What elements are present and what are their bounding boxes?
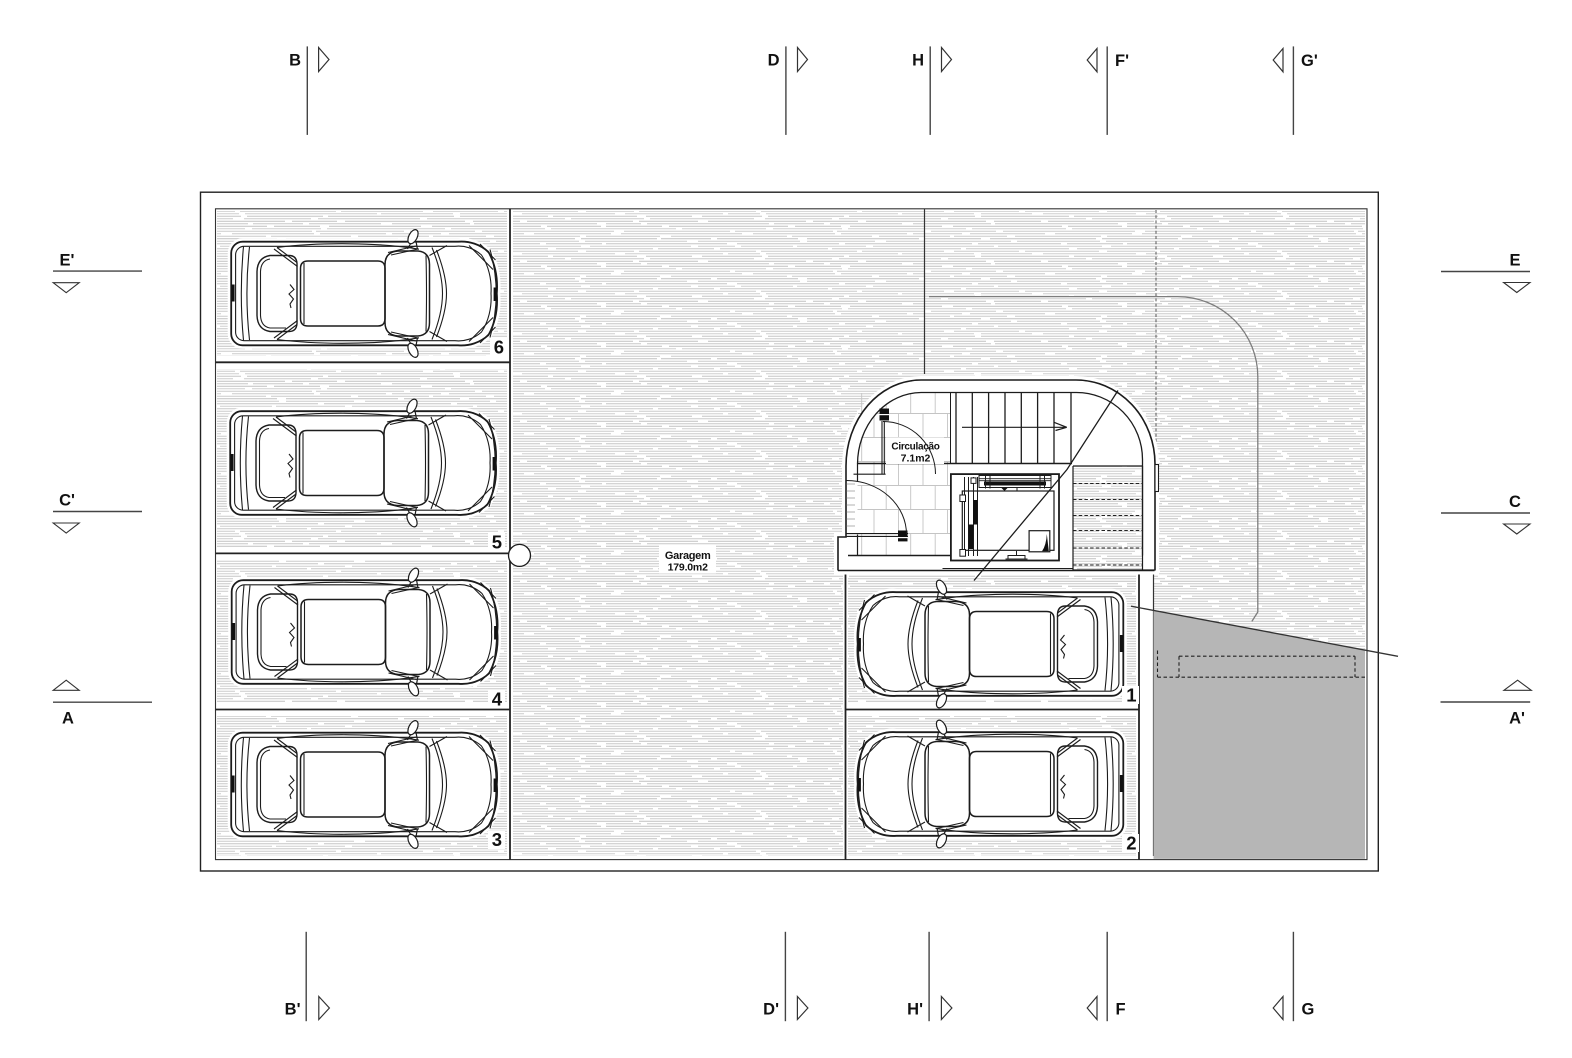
svg-text:Garagem: Garagem: [665, 550, 711, 562]
svg-text:5: 5: [492, 531, 502, 552]
svg-text:D': D': [763, 1001, 779, 1019]
svg-text:1: 1: [1126, 685, 1136, 706]
svg-text:4: 4: [492, 689, 503, 710]
svg-text:C': C': [59, 492, 75, 510]
svg-text:H': H': [907, 1001, 923, 1019]
svg-text:E': E': [60, 252, 75, 270]
svg-text:G: G: [1302, 1001, 1315, 1019]
svg-text:B: B: [289, 52, 301, 70]
svg-text:A: A: [62, 710, 74, 728]
svg-text:H: H: [912, 52, 924, 70]
svg-text:E: E: [1509, 252, 1520, 270]
svg-text:3: 3: [492, 829, 502, 850]
svg-text:6: 6: [494, 337, 504, 358]
svg-text:D: D: [768, 52, 780, 70]
svg-text:2: 2: [1126, 833, 1136, 854]
svg-text:F': F': [1115, 52, 1129, 70]
svg-text:7.1m2: 7.1m2: [901, 453, 931, 465]
svg-text:F: F: [1116, 1001, 1126, 1019]
svg-text:G': G': [1301, 52, 1318, 70]
svg-text:C: C: [1509, 493, 1521, 511]
svg-text:B': B': [285, 1001, 301, 1019]
svg-text:179.0m2: 179.0m2: [668, 562, 708, 574]
svg-text:Circulação: Circulação: [891, 442, 939, 453]
svg-text:A': A': [1509, 710, 1525, 728]
